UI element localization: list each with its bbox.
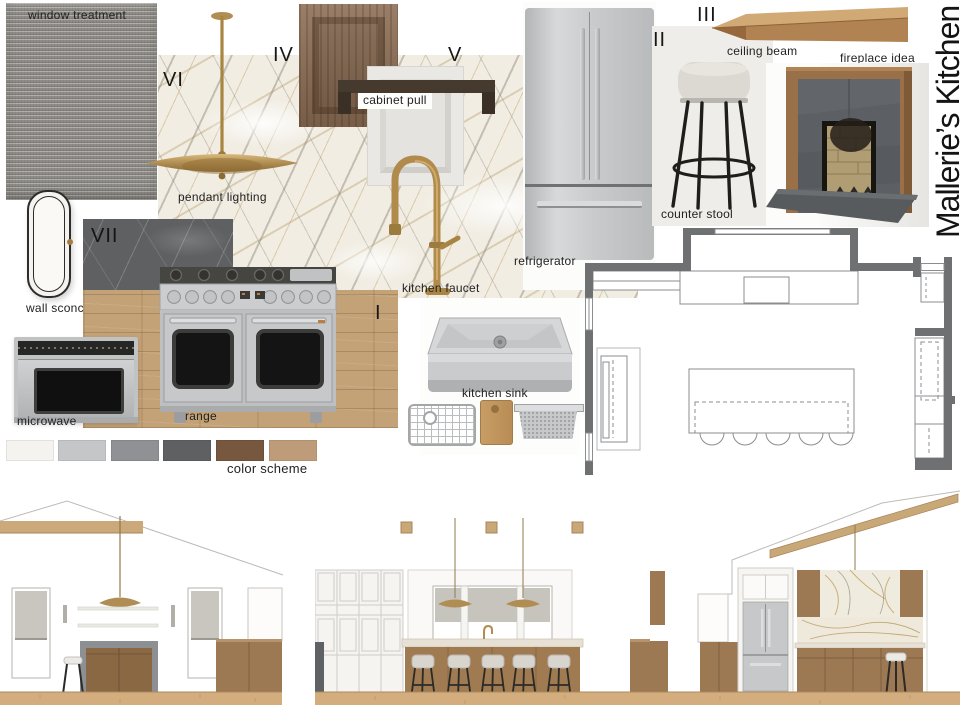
refrigerator-body: [525, 8, 654, 260]
moodboard-page: window treatment pendant lighting VI IV …: [0, 0, 960, 719]
counter-stool-label: counter stool: [661, 208, 733, 222]
color-swatch-6: [269, 440, 317, 461]
fridge-handle: [580, 28, 585, 180]
pendant-light-image: [145, 8, 300, 193]
numeral-v: V: [448, 45, 462, 65]
sink-grid-accessory: [408, 404, 476, 446]
fridge-handle: [595, 28, 600, 180]
cabinet-pull-foot: [482, 92, 495, 114]
microwave-window: [34, 368, 124, 414]
elevation-rendering-right: [650, 487, 960, 719]
microwave-control-panel: [18, 341, 134, 355]
fireplace-photo: [766, 63, 929, 227]
numeral-i: I: [375, 303, 382, 323]
range-label: range: [185, 410, 217, 424]
colander-basket: [519, 411, 577, 439]
floor-plan: [585, 228, 955, 475]
microwave-drawer: [18, 359, 134, 418]
numeral-ii: II: [653, 30, 666, 50]
numeral-iv: IV: [273, 45, 294, 65]
board-title: Mallerie’s Kitchen: [930, 6, 960, 238]
cutting-board-accessory: [480, 400, 513, 445]
microwave-photo: [14, 337, 138, 423]
counter-stool-photo: [660, 56, 768, 214]
cabinet-pull-label: cabinet pull: [358, 93, 432, 109]
pendant-lighting-label: pendant lighting: [178, 191, 267, 205]
color-swatch-1: [6, 440, 54, 461]
cabinet-pull-bar: [338, 80, 495, 93]
color-swatch-2: [58, 440, 106, 461]
range-photo: [152, 263, 344, 425]
numeral-vii: VII: [91, 226, 118, 246]
kitchen-sink-label: kitchen sink: [462, 387, 528, 401]
grid-drain-hole: [423, 411, 437, 425]
window-treatment-label: window treatment: [28, 9, 126, 23]
color-scheme-label: color scheme: [227, 462, 307, 477]
door-seam: [589, 12, 590, 180]
colander-rim: [514, 404, 584, 412]
kitchen-sink-image: [422, 306, 578, 398]
wall-sconce-label: wall sconce: [26, 302, 91, 316]
numeral-vi: VI: [163, 70, 184, 90]
ceiling-beam-photo: [712, 6, 908, 48]
elevation-rendering-middle: [315, 487, 650, 719]
sconce-knob: [67, 239, 73, 245]
microwave-label: microwave: [17, 415, 77, 429]
color-swatch-5: [216, 440, 264, 461]
kitchen-faucet-image: [385, 150, 465, 300]
freezer-seam: [525, 184, 654, 187]
refrigerator-label: refrigerator: [514, 255, 576, 269]
window-treatment-swatch: [6, 3, 157, 200]
board-hole: [491, 405, 499, 413]
elevation-rendering-left: [0, 487, 300, 719]
wall-sconce-photo: [27, 190, 71, 298]
ceiling-beam-label: ceiling beam: [727, 45, 797, 59]
cabinet-pull-foot: [338, 92, 351, 114]
kitchen-faucet-label: kitchen faucet: [402, 282, 480, 296]
colander-accessory: [517, 404, 579, 440]
color-swatch-4: [163, 440, 211, 461]
color-swatch-3: [111, 440, 159, 461]
freezer-handle: [537, 201, 642, 208]
sconce-inner: [33, 196, 65, 292]
